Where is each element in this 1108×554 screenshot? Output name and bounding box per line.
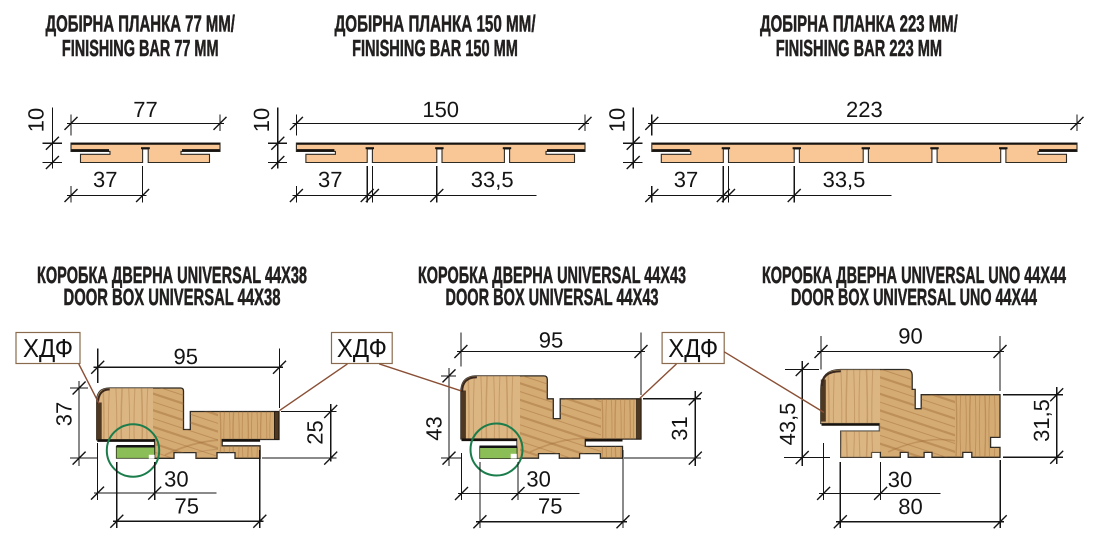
svg-text:80: 80 [898, 494, 922, 519]
svg-text:ХДФ: ХДФ [337, 333, 387, 363]
svg-text:FINISHING BAR 150 MM: FINISHING BAR 150 MM [352, 35, 518, 61]
svg-text:ДОБІРНА ПЛАНКА 77 ММ/: ДОБІРНА ПЛАНКА 77 ММ/ [45, 11, 235, 37]
svg-text:25: 25 [303, 420, 328, 444]
svg-text:ДОБІРНА ПЛАНКА 223 ММ/: ДОБІРНА ПЛАНКА 223 ММ/ [760, 11, 958, 37]
svg-text:10: 10 [605, 108, 630, 132]
svg-text:DOOR BOX UNIVERSAL 44X43: DOOR BOX UNIVERSAL 44X43 [446, 284, 659, 310]
svg-text:95: 95 [173, 344, 197, 369]
svg-text:ДОБІРНА ПЛАНКА 150 ММ/: ДОБІРНА ПЛАНКА 150 ММ/ [334, 11, 535, 37]
svg-text:10: 10 [24, 108, 49, 132]
svg-text:30: 30 [888, 467, 912, 492]
svg-text:FINISHING BAR 223 MM: FINISHING BAR 223 MM [776, 35, 942, 61]
svg-text:FINISHING BAR 77 MM: FINISHING BAR 77 MM [62, 35, 219, 61]
svg-text:10: 10 [249, 108, 274, 132]
svg-text:43: 43 [421, 416, 446, 440]
svg-text:ХДФ: ХДФ [23, 333, 73, 363]
svg-text:DOOR BOX UNIVERSAL 44X38: DOOR BOX UNIVERSAL 44X38 [64, 284, 281, 310]
svg-text:43,5: 43,5 [775, 403, 800, 446]
svg-text:75: 75 [174, 494, 198, 519]
svg-text:33,5: 33,5 [471, 167, 514, 192]
svg-text:150: 150 [422, 97, 459, 122]
svg-text:30: 30 [164, 467, 188, 492]
svg-text:ХДФ: ХДФ [668, 333, 718, 363]
svg-text:223: 223 [846, 97, 883, 122]
svg-text:95: 95 [539, 328, 563, 353]
svg-text:DOOR BOX UNIVERSAL UNO 44X44: DOOR BOX UNIVERSAL UNO 44X44 [791, 284, 1037, 310]
svg-text:37: 37 [93, 167, 117, 192]
svg-text:37: 37 [51, 402, 76, 426]
svg-text:33,5: 33,5 [823, 167, 866, 192]
svg-text:75: 75 [538, 494, 562, 519]
svg-text:37: 37 [674, 167, 698, 192]
svg-text:90: 90 [898, 324, 922, 349]
svg-text:31: 31 [667, 416, 692, 440]
svg-text:30: 30 [526, 467, 550, 492]
svg-text:77: 77 [133, 97, 157, 122]
svg-text:31,5: 31,5 [1029, 399, 1054, 442]
svg-text:37: 37 [318, 167, 342, 192]
